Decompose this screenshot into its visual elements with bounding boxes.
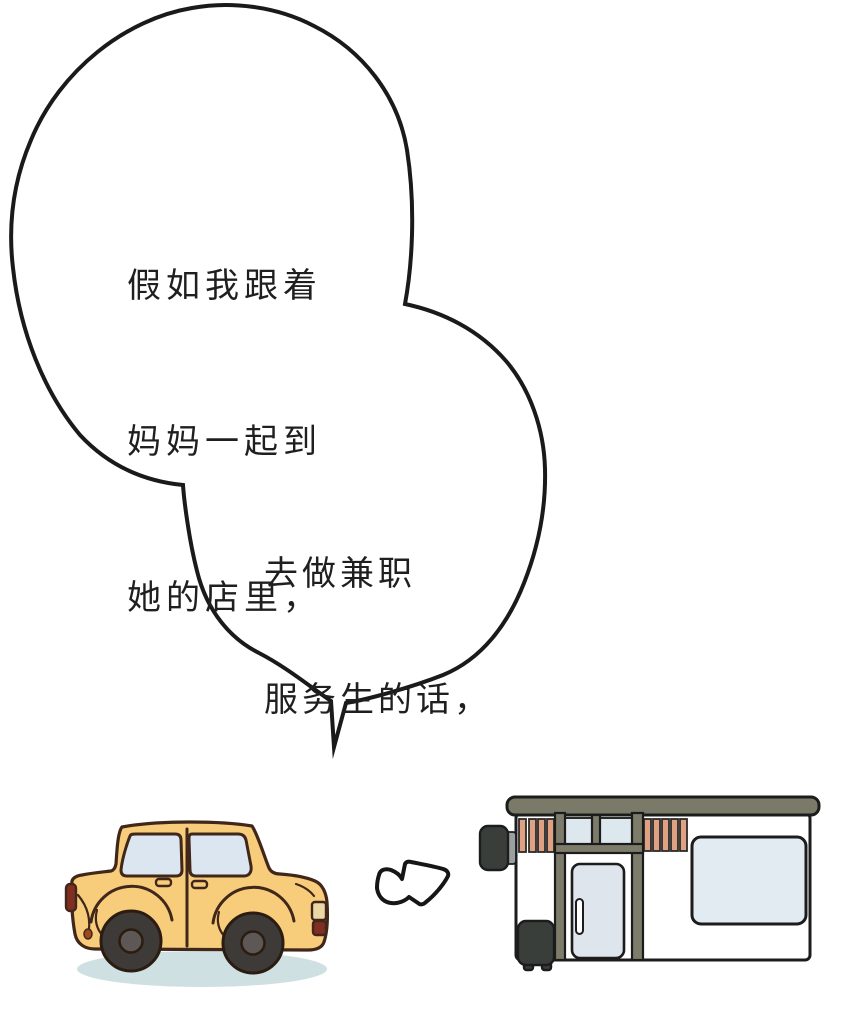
store-transom-rail: [555, 844, 643, 853]
store-post-left: [555, 813, 565, 960]
car-front-wheel: [101, 911, 161, 971]
car-bumper-light: [313, 921, 326, 935]
speech-text-line: 服务生的话，: [264, 679, 492, 721]
car-front-window: [121, 834, 182, 876]
store-standing-board: [518, 921, 554, 970]
store-post-right: [632, 813, 643, 960]
car-mud-dot: [84, 929, 92, 939]
car-front-door-handle: [156, 879, 171, 886]
store-transom-pane-left: [563, 818, 593, 845]
store-transom-pane-right: [599, 818, 632, 845]
speech-text-line: 去做兼职: [264, 553, 492, 595]
store-sign: [480, 826, 508, 870]
car-rear-wheel: [223, 913, 283, 973]
comic-panel: 假如我跟着 妈妈一起到 她的店里， 去做兼职 服务生的话，: [0, 0, 850, 1016]
right-arrow-icon: [377, 862, 448, 905]
store-roof: [507, 797, 819, 815]
car-headlight: [312, 902, 326, 920]
store-awning-right: [644, 819, 687, 851]
store-awning-left: [519, 819, 554, 852]
car-rear-window: [189, 834, 251, 876]
car-illustration: [66, 822, 327, 987]
store-door-handle: [576, 899, 583, 934]
car-taillight: [66, 884, 76, 911]
speech-text-line: 假如我跟着: [127, 260, 322, 312]
speech-text-block-2: 去做兼职 服务生的话，: [264, 469, 492, 805]
store-transom-mullion: [592, 815, 600, 846]
speech-text-line: 妈妈一起到: [127, 416, 322, 468]
store-door: [572, 864, 624, 958]
car-rear-door-handle: [192, 881, 207, 888]
store-illustration: [480, 797, 819, 970]
store-display-window: [692, 837, 806, 924]
